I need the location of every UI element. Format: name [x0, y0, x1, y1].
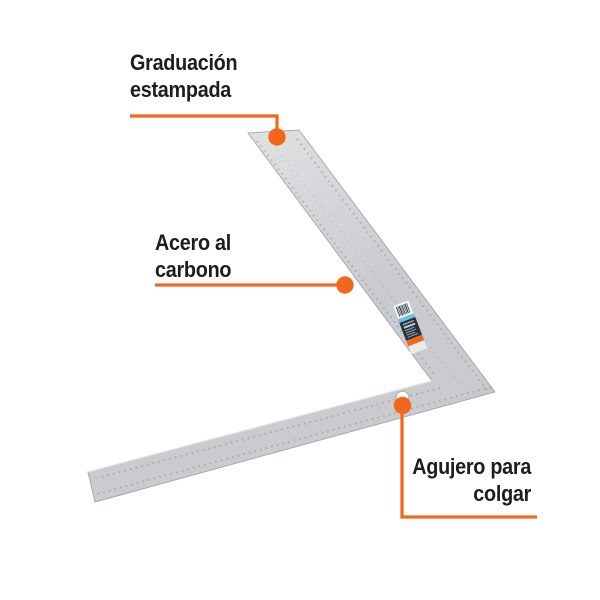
- framing-square-image: [0, 0, 600, 600]
- leader-dot-acero: [336, 276, 353, 293]
- product-diagram: Graduación estampada Acero al carbono Ag…: [0, 0, 600, 600]
- callout-acero-al-carbono: Acero al carbono: [155, 229, 240, 283]
- framing-square-body: [88, 130, 495, 502]
- callout-line: Acero al: [155, 229, 231, 256]
- callout-agujero-para-colgar: Agujero para colgar: [399, 453, 531, 507]
- leader-dot-agujero: [394, 397, 411, 414]
- callout-line: carbono: [155, 256, 231, 283]
- callout-line: Agujero para: [412, 453, 531, 480]
- leader-dot-graduacion: [268, 128, 285, 145]
- callout-line: estampada: [130, 76, 237, 103]
- blade-graduation-marks-outer: [297, 139, 487, 390]
- callout-line: Graduación: [130, 49, 237, 76]
- callout-line: colgar: [412, 480, 531, 507]
- callout-graduacion-estampada: Graduación estampada: [130, 49, 249, 103]
- tongue-edge-highlight: [88, 381, 432, 472]
- leader-graduacion: [130, 116, 277, 134]
